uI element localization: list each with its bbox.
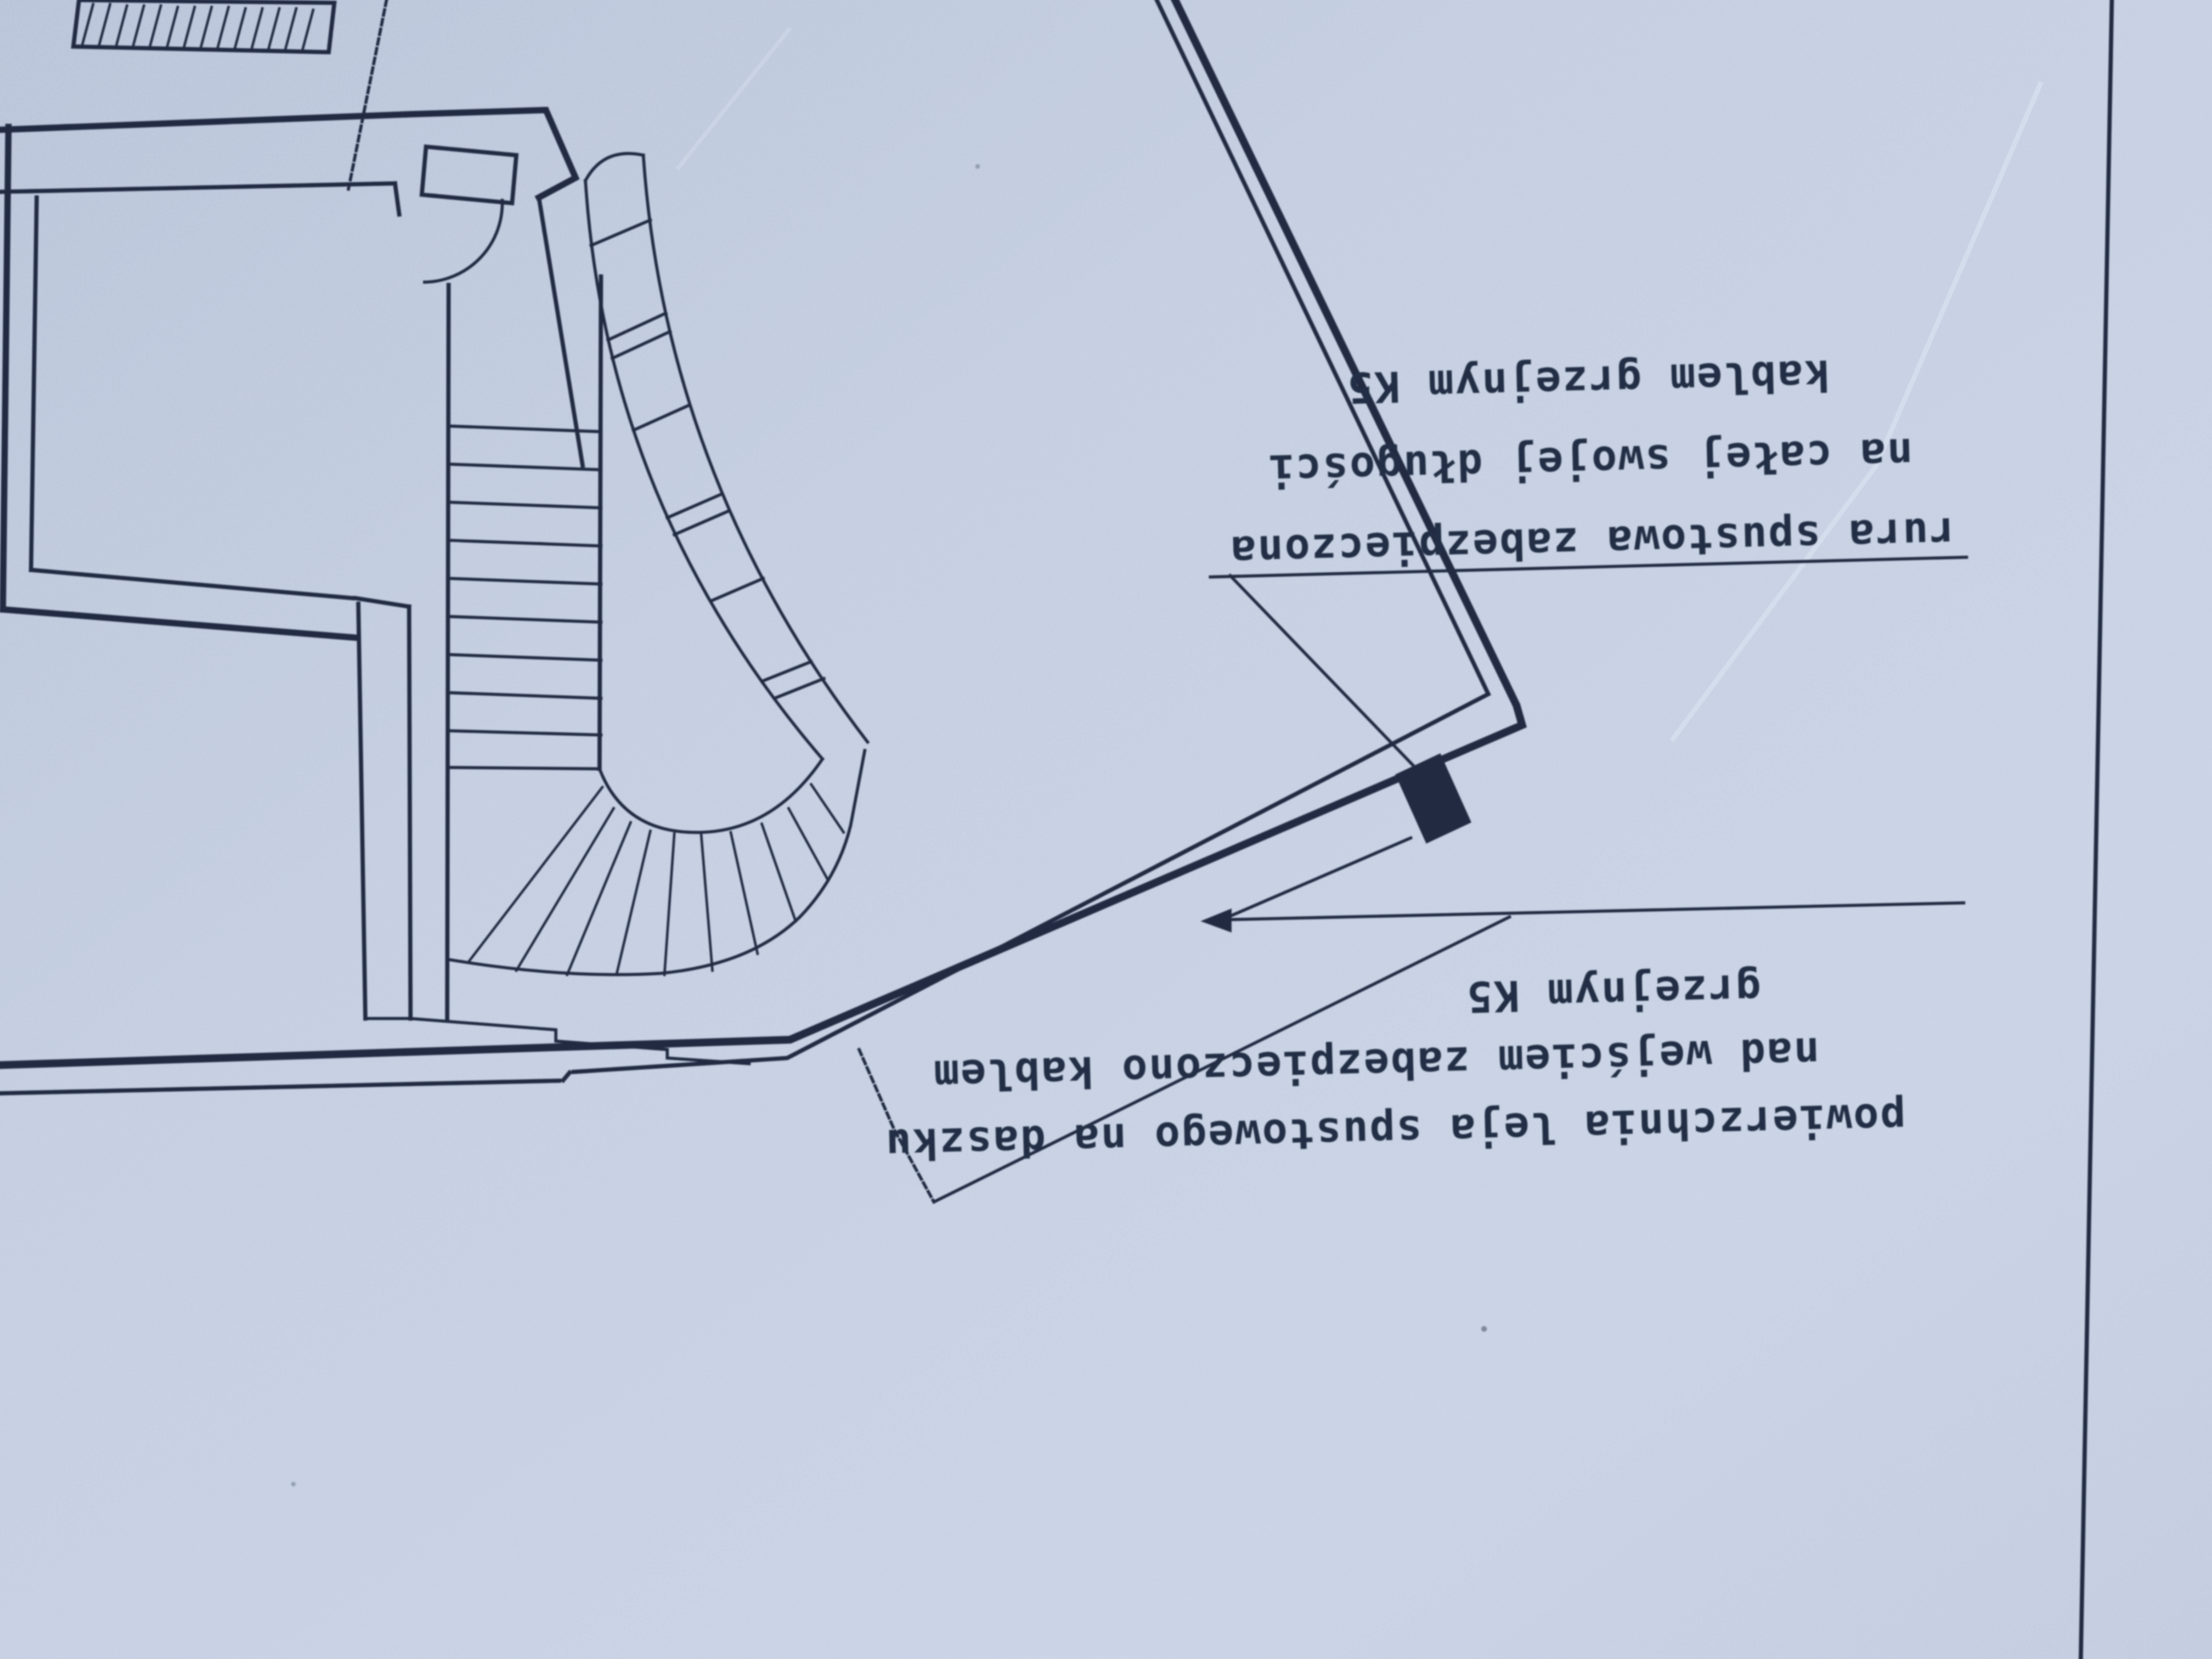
corridor-wall-right xyxy=(409,607,411,1019)
stair-rail-left xyxy=(447,285,449,1018)
paper-sheet xyxy=(0,0,2212,1659)
paper-speck xyxy=(975,164,980,168)
floor-plan-photo: rura spustowa zabezpieczona na całej swo… xyxy=(0,0,2212,1659)
tread-line xyxy=(450,768,600,769)
paper-speck xyxy=(291,1482,296,1486)
paper-texture xyxy=(0,0,2212,1659)
annotation-line: grzejnym K5 xyxy=(1465,964,1762,1021)
paper-speck xyxy=(1481,1326,1487,1331)
stair-rail-right xyxy=(600,276,601,769)
